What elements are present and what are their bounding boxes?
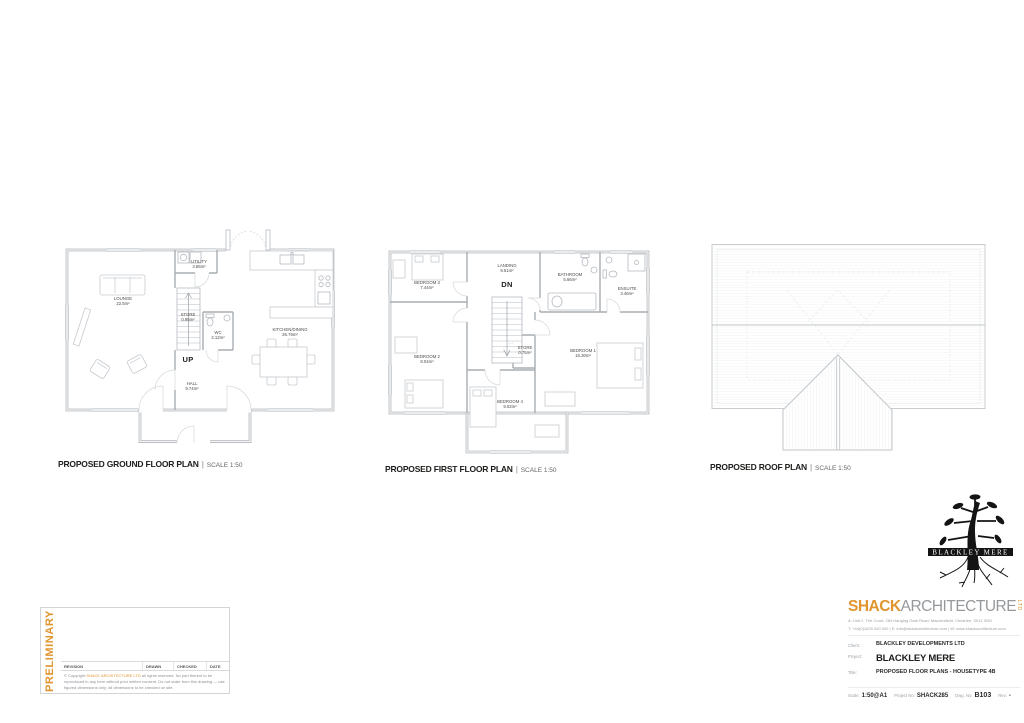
ground-floor-plan-drawing: LOUNGE 22.5m² UTILITY 3.86m² STORE 0.95m… [60,222,350,457]
room-label-bedroom2-area: 8.04m² [420,359,434,364]
drawing-meta-row: Scale:1:50@A1 Project No:SHACK285 Dwg. N… [848,687,1020,699]
firm-header: SHACKARCHITECTURE LTD A: Unit 2, The Cou… [848,598,1020,636]
dwg-no-label: Dwg. No: [955,693,972,698]
room-label-store-area: 0.75m² [518,350,532,355]
bed-bedroom2 [405,380,443,408]
blackley-mere-logo: BLACKLEY MERE [928,490,1013,595]
wardrobe-bedroom3 [393,260,405,278]
stairs-up-label: UP [182,355,193,364]
sofa [100,275,145,295]
copyright-note: © Copyright SHACK ARCHITECTURE LTD all r… [61,671,229,693]
armchair [127,354,148,374]
room-label-landing-area: 9.51m² [500,268,514,273]
title-separator: | [202,459,204,469]
copyright-firm-name: SHACK ARCHITECTURE LTD [86,673,140,678]
first-floor-plan-drawing: LANDING 9.51m² BEDROOM 3 7.44m² BATHROOM… [385,240,665,455]
bathroom-basin [591,267,597,273]
drawn-col-header: DRAWN [143,662,174,670]
shower [628,254,645,271]
room-label-kitchen-area: 26.76m² [282,332,298,337]
preliminary-watermark-strip: PRELIMINARY [41,608,61,693]
bed-bedroom1 [597,343,643,388]
revision-empty-area [61,608,229,661]
project-value: BLACKLEY MERE [876,653,955,664]
ensuite-basin [606,257,612,263]
first-floor-plan-scale: SCALE 1:50 [521,467,557,474]
title-separator: | [810,462,812,472]
room-label-lounge-area: 22.5m² [116,301,130,306]
firm-name-suffix: LTD [1016,600,1022,611]
room-label-bathroom-area: 5.66m² [563,277,577,282]
room-label-store-area: 0.95m² [181,317,195,322]
project-no-value: SHACK285 [917,693,948,699]
room-label-ensuite-area: 3.46m² [620,291,634,296]
copyright-prefix: © Copyright [64,673,86,678]
first-floor-plan-title: PROPOSED FIRST FLOOR PLAN|SCALE 1:50 [385,464,557,474]
roof-plan-title-text: PROPOSED ROOF PLAN [710,462,807,472]
stairs-down-label: DN [501,280,512,289]
date-col-header: DATE [207,662,229,670]
client-label: Client: [848,641,876,648]
room-label-bedroom1-area: 15.30m² [575,353,591,358]
client-row: Client: BLACKLEY DEVELOPMENTS LTD [848,641,1020,648]
bed-bedroom3 [412,254,443,280]
room-label-bedroom3-area: 7.44m² [420,285,434,290]
roof-plan-title: PROPOSED ROOF PLAN|SCALE 1:50 [710,462,851,472]
scale-label: Scale: [848,693,860,698]
bath [548,293,596,310]
tv-unit [73,308,90,346]
firm-contact: T: +44(0)1625 000 000 | E: info@shackarc… [848,626,1020,632]
room-label-utility-area: 3.86m² [192,264,206,269]
title-separator: | [516,464,518,474]
ground-floor-plan-title: PROPOSED GROUND FLOOR PLAN|SCALE 1:50 [58,459,243,469]
rev-value: - [1009,693,1011,699]
preliminary-watermark: PRELIMINARY [44,609,56,692]
logo-tree: BLACKLEY MERE [928,494,1013,587]
bathroom-toilet [581,254,589,266]
drawing-title-row: Title: PROPOSED FLOOR PLANS - HOUSETYPE … [848,669,1020,676]
checked-col-header: CHECKED [174,662,207,670]
toilet [206,314,214,326]
project-label: Project: [848,653,876,660]
room-label-wc-area: 2.12m² [211,335,225,340]
room-label-bedroom4-area: 9.02m² [503,404,517,409]
room-label-hall-area: 9.74m² [185,386,199,391]
dining-table [252,339,315,385]
scale-value: 1:50@A1 [862,693,888,699]
wardrobe-bedroom2 [395,337,417,353]
wardrobe-bedroom1 [545,392,575,406]
ground-floor-plan-scale: SCALE 1:50 [207,462,243,469]
project-row: Project: BLACKLEY MERE [848,653,1020,664]
logo-roots [940,557,1008,587]
basin [224,315,230,321]
client-value: BLACKLEY DEVELOPMENTS LTD [876,641,965,647]
project-no-label: Project No: [894,693,915,698]
firm-name-rest: ARCHITECTURE [901,598,1016,615]
drawing-title-label: Title: [848,669,876,676]
ensuite-toilet [603,270,617,278]
revision-header-row: REVISION DRAWN CHECKED DATE [61,661,229,671]
desk-bedroom4 [535,425,559,437]
title-block: SHACKARCHITECTURE LTD A: Unit 2, The Cou… [848,598,1020,699]
logo-text: BLACKLEY MERE [932,548,1008,556]
preliminary-panel: PRELIMINARY REVISION DRAWN CHECKED DATE … [40,607,230,694]
bed-bedroom4 [470,387,496,427]
armchair [90,359,111,379]
rev-label: Rev: [998,693,1007,698]
kitchen-counter [250,251,333,318]
dwg-no-value: B103 [974,692,991,699]
revision-col-header: REVISION [61,662,143,670]
first-floor-plan-title-text: PROPOSED FIRST FLOOR PLAN [385,464,513,474]
firm-address: A: Unit 2, The Court, 284 Hanging Gate R… [848,618,1020,624]
roof-plan-drawing [705,240,995,455]
ground-floor-plan-title-text: PROPOSED GROUND FLOOR PLAN [58,459,199,469]
roof-plan-scale: SCALE 1:50 [815,465,851,472]
firm-name-accent: SHACK [848,598,901,615]
drawing-title-value: PROPOSED FLOOR PLANS - HOUSETYPE 4B [876,669,996,675]
